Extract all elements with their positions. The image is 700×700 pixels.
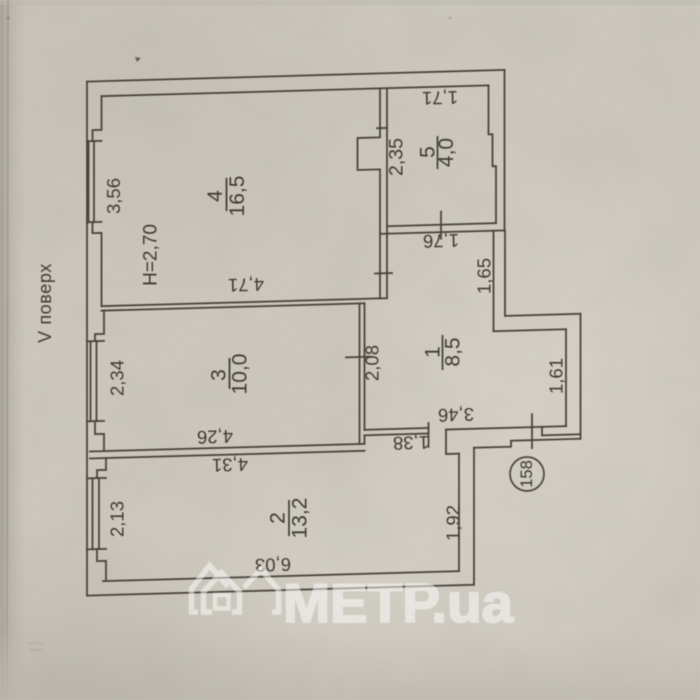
svg-text:1,38: 1,38	[393, 432, 430, 454]
svg-text:158: 158	[518, 460, 536, 488]
svg-text:1,92: 1,92	[443, 505, 464, 541]
svg-text:1,71: 1,71	[422, 87, 459, 109]
svg-text:13,2: 13,2	[289, 498, 312, 539]
svg-text:16,5: 16,5	[226, 176, 249, 217]
svg-text:4,71: 4,71	[228, 274, 265, 296]
svg-text:2: 2	[267, 512, 290, 524]
svg-text:4,31: 4,31	[212, 454, 249, 476]
svg-text:1,76: 1,76	[423, 230, 460, 252]
svg-text:2,08: 2,08	[362, 345, 383, 381]
svg-text:1,65: 1,65	[474, 258, 495, 294]
svg-text:1,61: 1,61	[546, 358, 567, 394]
svg-text:10,0: 10,0	[229, 354, 252, 395]
svg-text:4: 4	[204, 190, 227, 202]
svg-text:2,13: 2,13	[107, 501, 128, 537]
svg-text:3,46: 3,46	[438, 404, 475, 426]
svg-text:4,26: 4,26	[197, 426, 234, 448]
svg-text:8,5: 8,5	[442, 337, 465, 366]
svg-text:3: 3	[208, 369, 231, 381]
svg-text:4,0: 4,0	[435, 138, 458, 167]
svg-text:2,34: 2,34	[107, 360, 128, 396]
svg-text:МЕТР.ua: МЕТР.ua	[283, 572, 513, 634]
svg-text:3,56: 3,56	[103, 178, 124, 214]
svg-text:2,35: 2,35	[386, 138, 408, 176]
svg-text:V поверх: V поверх	[35, 263, 55, 343]
svg-text:Н=2,70: Н=2,70	[141, 224, 162, 286]
